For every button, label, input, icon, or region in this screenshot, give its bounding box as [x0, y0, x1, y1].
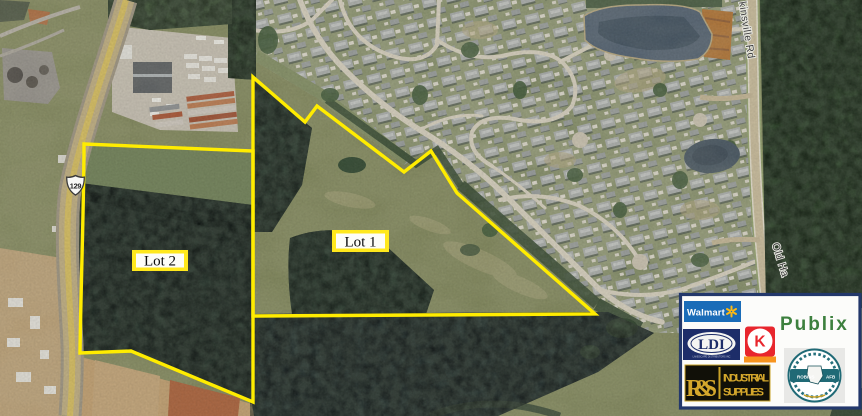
svg-text:AFB: AFB: [826, 375, 836, 380]
svg-text:INDUSTRIAL: INDUSTRIAL: [723, 373, 769, 385]
svg-text:R&S: R&S: [686, 376, 717, 402]
svg-text:Publix: Publix: [780, 314, 848, 335]
svg-text:129: 129: [70, 182, 82, 191]
svg-text:LANDSCAPE DISTRIBUTORS INC: LANDSCAPE DISTRIBUTORS INC: [693, 356, 731, 359]
svg-text:ROBINS: ROBINS: [797, 375, 815, 380]
svg-text:Lot 2: Lot 2: [144, 254, 176, 270]
svg-text:Walmart: Walmart: [687, 308, 726, 319]
svg-text:Lot 1: Lot 1: [344, 235, 376, 251]
svg-text:LDI: LDI: [698, 337, 725, 353]
svg-text:SUPPLIES: SUPPLIES: [723, 387, 764, 399]
svg-text:K: K: [754, 334, 766, 351]
